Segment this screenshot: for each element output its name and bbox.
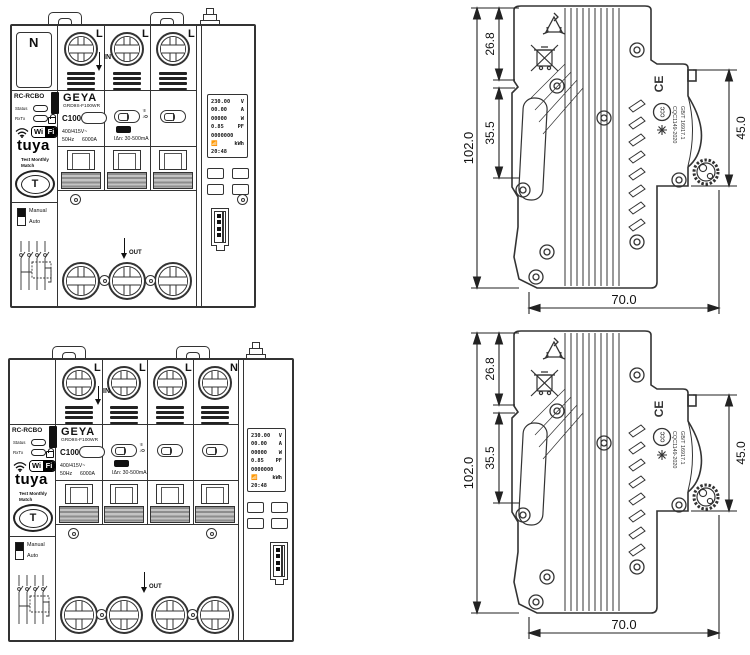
side-view-bottom: CE CCC CQC1149-2020 GB/T 16917.1 102.0 [461,325,749,655]
test-button-label: T [19,509,48,528]
toggle-switch[interactable] [202,444,228,457]
in-arrow-icon [99,52,100,68]
io-indicator: ↑I↓O [142,108,148,120]
bottom-terminal-screw [154,262,192,300]
dim-width: 70.0 [611,617,636,632]
dim-mid-section: 35.5 [483,446,497,470]
aux-connector [270,542,288,580]
model-number: GRD9S-F100WR [63,104,100,109]
pole-section: L L L N IN GEYA GRD9S-F100WR C100 400 [56,360,238,640]
side-view-top: CE CCC CQC1149-2020 GB/T 16917.1 102.0 [461,0,749,330]
out-arrow-icon [144,572,145,590]
meter-module: 230.00V 00.00A 00000W 0.85PF 0000000 📶kW… [196,26,254,306]
wifi-badge-wi: Wi [32,127,45,137]
adjustment-dial [694,485,718,509]
screw-dot [99,275,110,286]
lcd-row: 20:48 [251,482,282,490]
terminal-screw [153,366,187,400]
handle-slot [201,484,229,504]
brand-logo: GEYA [63,92,97,104]
manual-auto-switch[interactable] [15,542,24,560]
dim-overall-height: 102.0 [461,457,476,490]
status-led [31,439,46,446]
lock-icon [48,117,56,124]
dim-width: 70.0 [611,292,636,307]
cert-standard: GB/T 16917.1 [679,431,685,464]
rating-label: C100 [62,114,81,123]
breaker-body: RC-RCBO Status RxTx WiFi tuya Test Month [8,358,294,642]
dimension-lines [471,8,737,314]
breaker-handle[interactable] [150,506,190,523]
pole-label: N [230,362,238,374]
wifi-signal-icon: 📶 [211,140,218,148]
vent-slots [629,100,645,231]
lcd-row: 📶kWh [251,474,282,482]
cert-flower-icon [657,125,667,135]
screw-dot [206,528,217,539]
cert-number: CQC1149-2020 [671,106,677,143]
lcd-button[interactable] [271,518,288,529]
toggle-switch[interactable] [111,444,137,457]
auto-label: Auto [29,219,40,225]
bottom-terminal-screw [105,596,143,634]
recycle-icon [543,338,565,359]
pole-label-neutral: N [29,35,38,50]
auto-label: Auto [27,553,38,559]
leakage-class-badge [116,126,131,133]
din-slot [518,97,547,200]
match-label: Match [19,497,32,502]
breaking-capacity: 6000A [82,137,97,143]
wifi-badge-fi: Fi [45,127,57,137]
breaking-capacity: 6000A [80,471,95,477]
din-slot [518,422,547,525]
front-view-4pole: RC-RCBO Status RxTx WiFi tuya Test Month [8,342,294,644]
lcd-button[interactable] [271,502,288,513]
bottom-terminal-screw [151,596,189,634]
pole-label: L [94,362,101,374]
leakage-rating: IΔn: 30-500mA [112,470,147,476]
handle-slot [110,484,138,504]
test-button[interactable]: T [15,170,55,198]
match-label: Match [21,163,34,168]
lock-icon [46,451,54,458]
cert-number: CQC1149-2020 [671,431,677,468]
bottom-terminal-screw [62,262,100,300]
test-monthly-label: Test Monthly Match [21,157,49,169]
breaker-handle[interactable] [61,172,101,189]
no-trash-icon [531,45,558,71]
rear-tab [688,395,696,406]
screw-dot [187,609,198,620]
lcd-button[interactable] [232,168,249,179]
wiring-schematic [15,238,55,294]
lcd-row: 📶kWh [211,140,244,148]
pole-label: L [139,362,146,374]
screw-dot [96,609,107,620]
lcd-row: 0000000 [211,132,244,140]
terminal-screw [156,32,190,66]
toggle-switch[interactable] [160,110,186,123]
status-led-label: Status [15,106,27,111]
screw-dot [237,194,248,205]
rxtx-led [31,449,46,456]
pole-label: L [185,362,192,374]
lcd-button[interactable] [207,184,224,195]
breaker-body: N RC-RCBO Status RxTx WiFi tuya [10,24,256,308]
wifi-signal-icon: 📶 [251,474,258,482]
vent-slots [629,425,645,556]
in-arrow-icon [98,386,99,402]
tuya-logo: tuya [15,471,48,488]
ce-mark: CE [652,401,666,418]
frequency-rating: 50Hz [60,471,72,477]
lcd-row: 0.85PF [211,123,244,131]
out-arrow-icon [124,238,125,256]
handle-slot [156,484,184,504]
model-number: GRD9S-F100WR [61,438,98,443]
breaker-handle[interactable] [104,506,144,523]
ccc-mark: CCC [654,429,671,446]
lcd-row: 20:48 [211,148,244,156]
lcd-row: 00.00A [251,440,282,448]
out-label: OUT [129,250,142,256]
dim-overall-height: 102.0 [461,132,476,165]
dim-front-height: 45.0 [734,116,748,140]
test-monthly-label: Test Monthly Match [19,491,47,503]
handle-slot [159,150,187,170]
dim-top-section: 26.8 [483,357,497,381]
cooling-fins [565,8,619,286]
rcbo-type-label: RC-RCBO [14,93,44,100]
rxtx-led-label: RxTx [13,450,23,455]
manual-auto-switch[interactable] [17,208,26,226]
wiring-schematic [13,572,53,628]
voltage-rating: 400/415V~ [62,129,87,135]
breaker-handle[interactable] [59,506,99,523]
voltage-rating: 400/415V~ [60,463,85,469]
in-label: IN [104,54,111,61]
terminal-screw [110,32,144,66]
terminal-screw [198,366,232,400]
lcd-row: 230.00V [251,432,282,440]
terminal-screw [107,366,141,400]
cooling-fins [565,333,619,611]
control-module: N RC-RCBO Status RxTx WiFi tuya [12,26,58,306]
recycle-icon [543,13,565,34]
technical-drawing-canvas: N RC-RCBO Status RxTx WiFi tuya [0,0,750,655]
breaker-handle[interactable] [107,172,147,189]
control-module: RC-RCBO Status RxTx WiFi tuya Test Month [10,360,56,640]
pole-section: L L L IN GEYA GRD9S-F100WR C100 400/415V… [58,26,196,306]
dim-top-section: 26.8 [483,32,497,56]
status-led [33,105,48,112]
lcd-row: 00000W [251,449,282,457]
handle-slot [67,150,95,170]
handle-slot [113,150,141,170]
frequency-rating: 50Hz [62,137,74,143]
rear-tab [688,70,696,81]
leakage-rating: IΔn: 30-500mA [114,136,149,142]
manual-label: Manual [29,208,47,214]
handle-slot [65,484,93,504]
bottom-terminal-screw [196,596,234,634]
dim-mid-section: 35.5 [483,121,497,145]
rating-window [79,446,105,458]
rxtx-led [33,115,48,122]
pole-label: L [188,28,195,40]
status-led-label: Status [13,440,25,445]
adjustment-dial [694,160,718,184]
rxtx-led-label: RxTx [15,116,25,121]
lcd-button[interactable] [247,502,264,513]
io-indicator: ↑I↓O [139,442,145,454]
breaker-handle[interactable] [195,506,235,523]
terminal-screw [64,32,98,66]
toggle-switch[interactable] [157,444,183,457]
meter-module: 230.00V 00.00A 00000W 0.85PF 0000000 📶kW… [238,360,292,640]
out-label: OUT [149,584,162,590]
screw-dot [145,275,156,286]
lcd-row: 00.00A [211,106,244,114]
lcd-button[interactable] [207,168,224,179]
dim-front-height: 45.0 [734,441,748,465]
rcbo-type-label: RC-RCBO [12,427,42,434]
leakage-class-badge [114,460,129,467]
lcd-row: 00000W [211,115,244,123]
brand-logo: GEYA [61,426,95,438]
lcd-display: 230.00V 00.00A 00000W 0.85PF 0000000 📶kW… [207,94,248,158]
lcd-row: 0000000 [251,466,282,474]
in-label: IN [103,388,110,395]
front-view-3pole: N RC-RCBO Status RxTx WiFi tuya [10,8,256,310]
lcd-display: 230.00V 00.00A 00000W 0.85PF 0000000 📶kW… [247,428,286,492]
test-button[interactable]: T [13,504,53,532]
rating-window [81,112,107,124]
screw-dot [68,528,79,539]
aux-connector [211,208,229,246]
svg-text:CCC: CCC [661,106,667,117]
bottom-terminal-screw [108,262,146,300]
rating-label: C100 [60,448,79,457]
lcd-row: 0.85PF [251,457,282,465]
tuya-logo: tuya [17,137,50,154]
dimension-lines [471,333,737,639]
pole-label: L [142,28,149,40]
cert-flower-icon [657,450,667,460]
ce-mark: CE [652,76,666,93]
lcd-row: 230.00V [211,98,244,106]
screw-dot [70,194,81,205]
manual-label: Manual [27,542,45,548]
no-trash-icon [531,370,558,396]
svg-text:CCC: CCC [661,431,667,442]
pole-label: L [96,28,103,40]
bottom-terminal-screw [60,596,98,634]
ccc-mark: CCC [654,104,671,121]
test-button-label: T [21,175,50,194]
terminal-screw [62,366,96,400]
breaker-handle[interactable] [153,172,193,189]
lcd-button[interactable] [247,518,264,529]
toggle-switch[interactable] [114,110,140,123]
cert-standard: GB/T 16917.1 [679,106,685,139]
